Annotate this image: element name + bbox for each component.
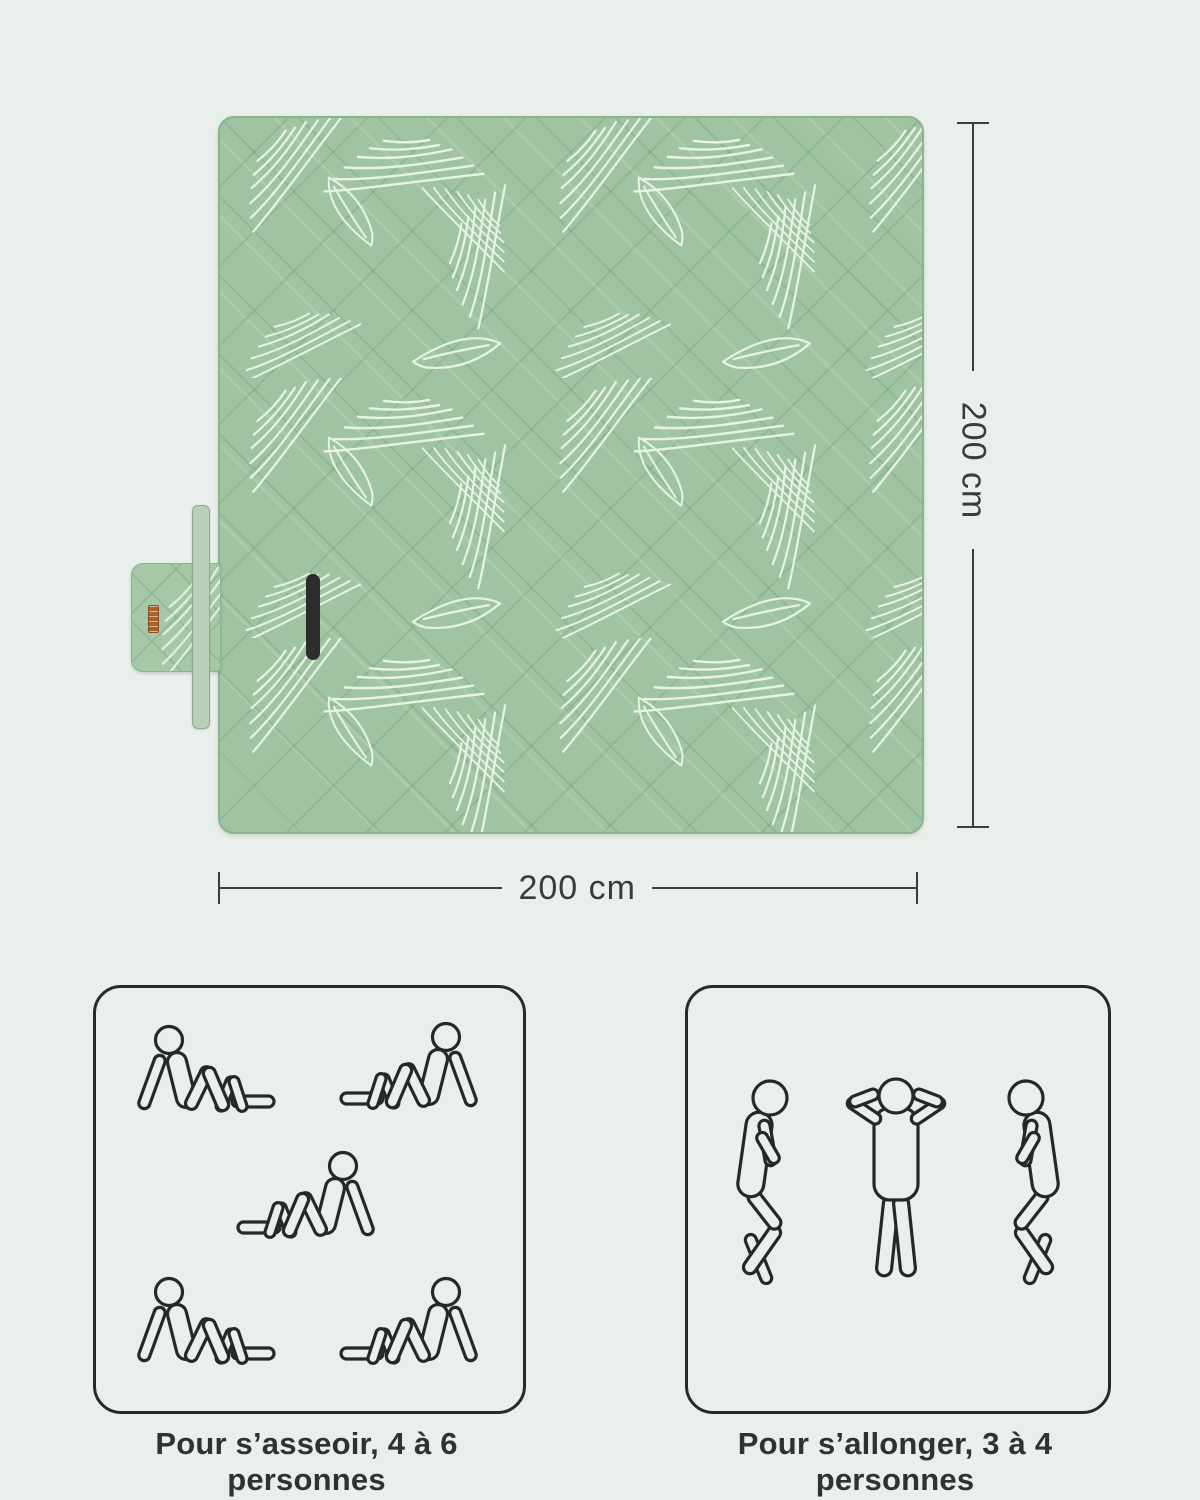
lying-capacity-box bbox=[685, 985, 1111, 1414]
sitting-person-icon bbox=[136, 1276, 276, 1371]
carry-handle bbox=[306, 574, 320, 660]
lying-person-side-icon bbox=[981, 1068, 1076, 1318]
sitting-person-icon bbox=[339, 1021, 479, 1116]
sitting-person-icon bbox=[236, 1150, 376, 1245]
leaf-pattern bbox=[220, 118, 922, 832]
lying-person-side-icon bbox=[720, 1068, 815, 1318]
sitting-capacity-box bbox=[93, 985, 526, 1414]
sitting-person-icon bbox=[339, 1276, 479, 1371]
dimension-tick-right bbox=[916, 872, 918, 904]
height-dimension-line: 200 cm bbox=[957, 122, 989, 828]
lying-capacity-caption: Pour s’allonger, 3 à 4 personnes bbox=[685, 1426, 1105, 1498]
closure-strap bbox=[192, 505, 210, 729]
dimension-tick-bottom bbox=[957, 826, 989, 828]
width-dimension-label: 200 cm bbox=[518, 869, 636, 908]
sitting-person-icon bbox=[136, 1024, 276, 1119]
picnic-blanket bbox=[218, 116, 924, 834]
lying-person-back-icon bbox=[836, 1066, 956, 1316]
product-infographic: 200 cm 200 cm Pour s’asseoir, 4 à 6 pers… bbox=[0, 0, 1200, 1500]
height-dimension-label: 200 cm bbox=[914, 371, 1032, 549]
width-dimension-line: 200 cm bbox=[218, 872, 918, 904]
brand-tag bbox=[148, 605, 159, 633]
sitting-capacity-caption: Pour s’asseoir, 4 à 6 personnes bbox=[93, 1426, 520, 1498]
